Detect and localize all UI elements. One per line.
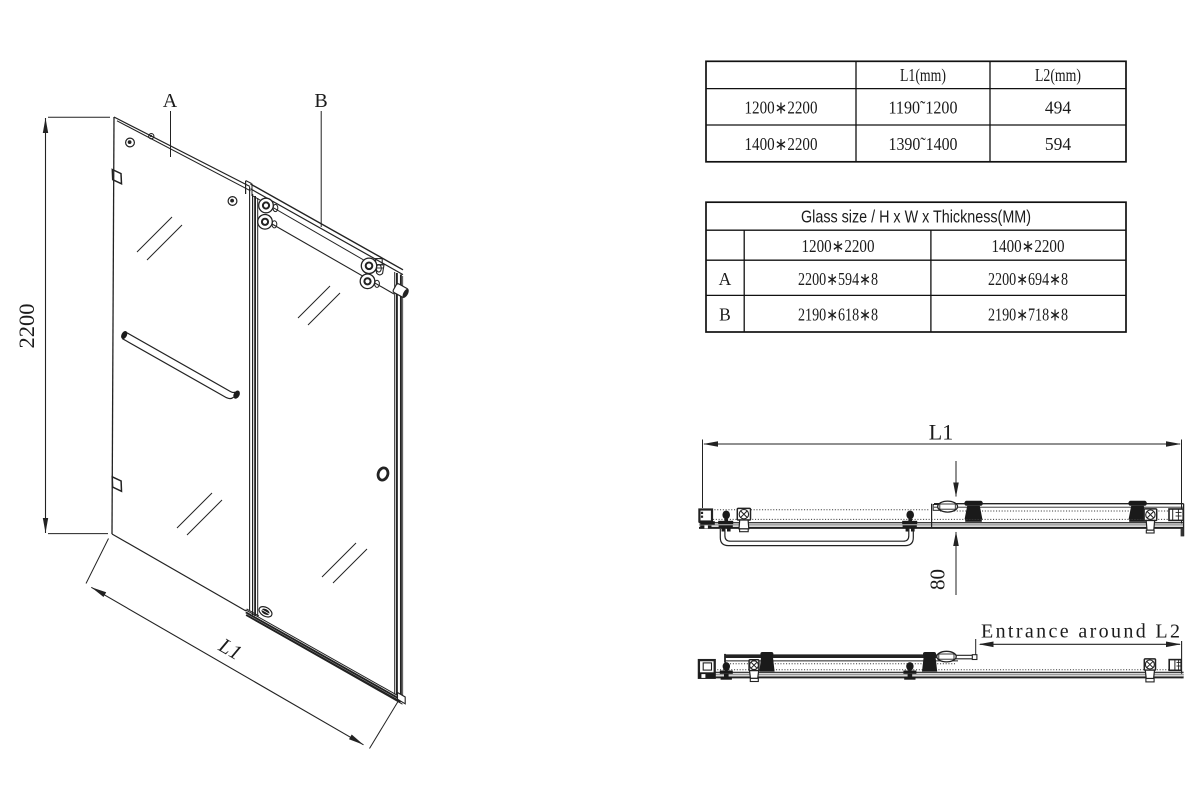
svg-text:Glass size / H x W x Thickness: Glass size / H x W x Thickness(MM) (801, 207, 1031, 227)
svg-text:1200∗2200: 1200∗2200 (802, 236, 875, 256)
svg-text:1400∗2200: 1400∗2200 (745, 134, 818, 154)
svg-text:1200∗2200: 1200∗2200 (745, 98, 818, 118)
svg-text:1190˜1200: 1190˜1200 (889, 98, 958, 118)
svg-text:2200∗694∗8: 2200∗694∗8 (988, 269, 1068, 289)
svg-text:2190∗718∗8: 2190∗718∗8 (988, 304, 1068, 324)
svg-text:Entrance around L2: Entrance around L2 (981, 621, 1180, 643)
svg-text:2200∗594∗8: 2200∗594∗8 (798, 269, 878, 289)
svg-text:L1: L1 (929, 420, 953, 445)
svg-text:2200: 2200 (14, 304, 39, 349)
svg-text:L2(mm): L2(mm) (1035, 65, 1081, 85)
svg-text:594: 594 (1045, 134, 1072, 154)
svg-text:80: 80 (926, 569, 950, 590)
svg-text:1390˜1400: 1390˜1400 (889, 134, 958, 154)
svg-text:B: B (314, 90, 327, 112)
svg-text:A: A (163, 90, 178, 112)
svg-text:A: A (719, 269, 732, 289)
svg-text:2190∗618∗8: 2190∗618∗8 (798, 304, 878, 324)
svg-text:L1(mm): L1(mm) (900, 65, 946, 85)
svg-text:494: 494 (1045, 98, 1072, 118)
svg-text:1400∗2200: 1400∗2200 (992, 236, 1065, 256)
svg-text:B: B (719, 304, 731, 324)
